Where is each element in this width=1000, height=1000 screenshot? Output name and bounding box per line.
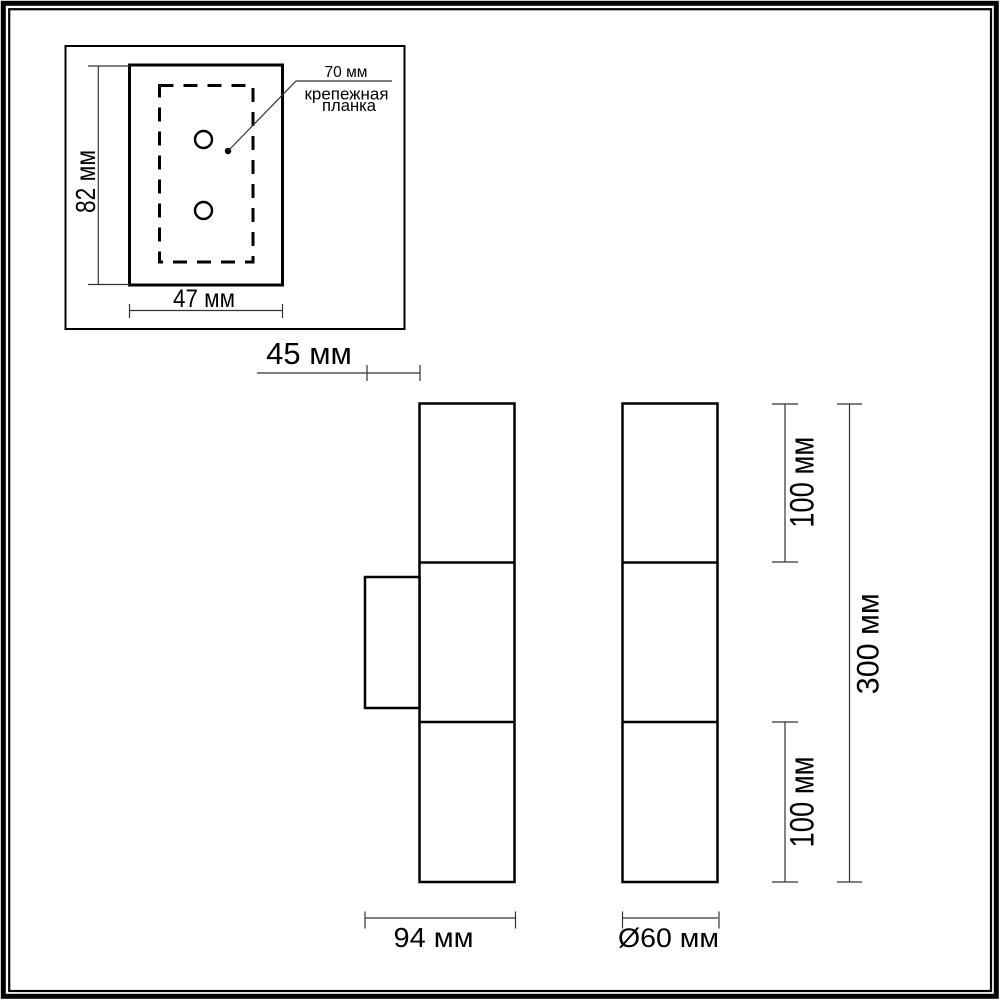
svg-text:47 мм: 47 мм (173, 285, 235, 313)
svg-text:82 мм: 82 мм (70, 150, 101, 213)
svg-text:Ø60 мм: Ø60 мм (618, 923, 719, 953)
svg-text:94 мм: 94 мм (394, 922, 474, 953)
svg-text:100 мм: 100 мм (784, 757, 822, 848)
svg-text:45 мм: 45 мм (266, 336, 352, 371)
svg-text:300 мм: 300 мм (850, 593, 886, 694)
svg-text:100 мм: 100 мм (784, 437, 822, 528)
svg-text:70 мм: 70 мм (325, 64, 368, 81)
svg-text:планка: планка (322, 97, 377, 115)
